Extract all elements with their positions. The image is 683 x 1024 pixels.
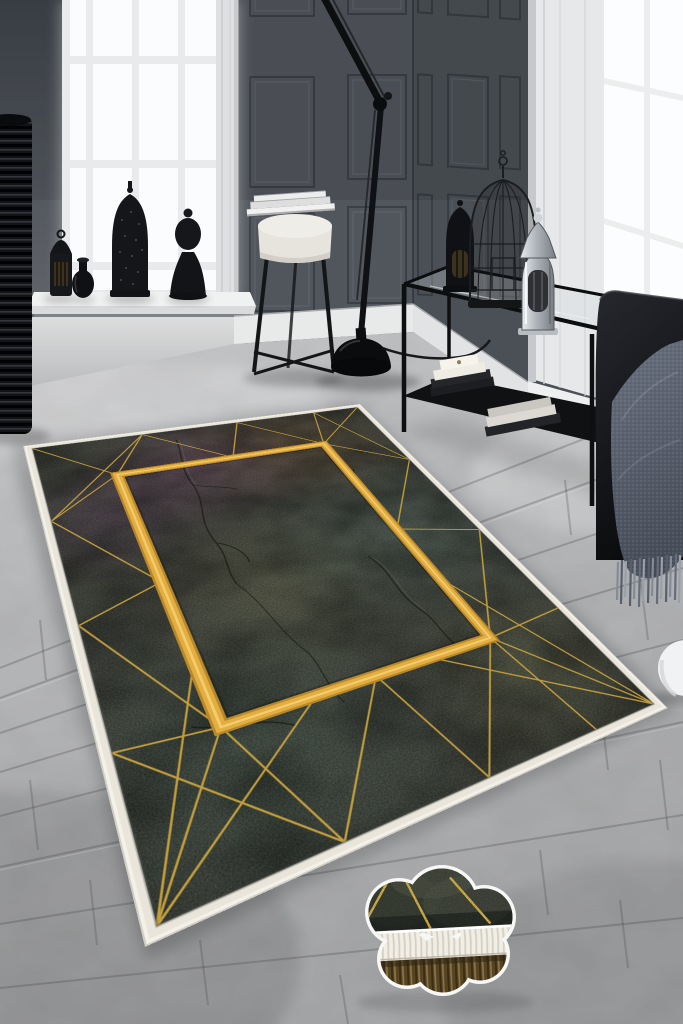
left-window <box>28 0 256 390</box>
room-scene <box>0 0 683 1024</box>
fringe-detail-cloud-badge <box>341 858 537 1018</box>
armchair-with-throw <box>596 291 683 607</box>
